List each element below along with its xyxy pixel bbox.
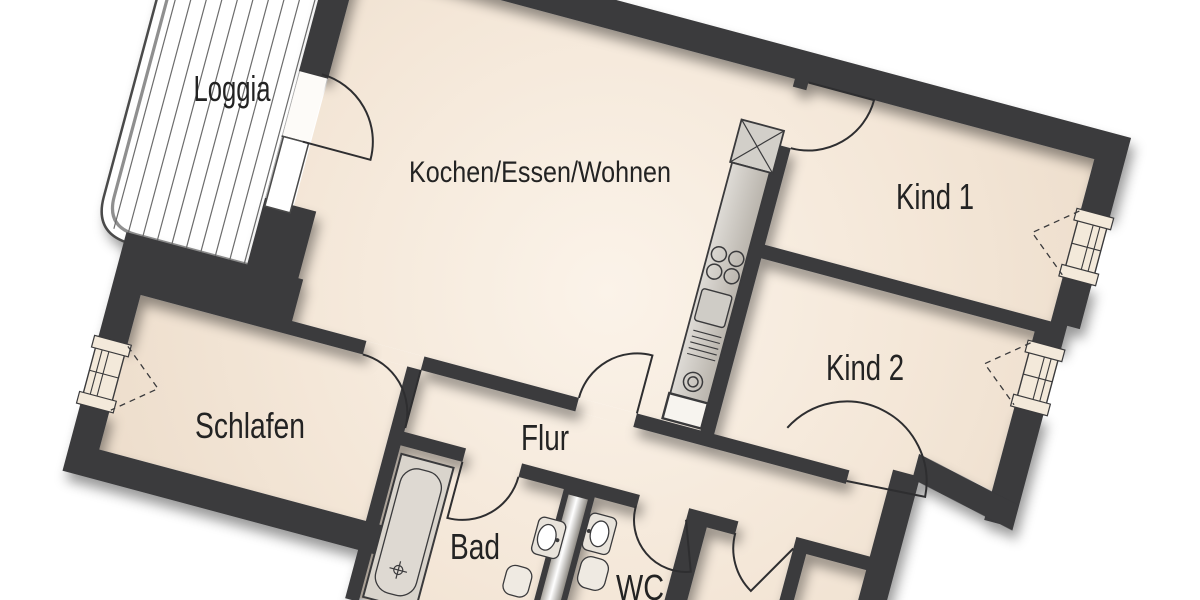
svg-text:Flur: Flur: [521, 417, 569, 458]
svg-text:Loggia: Loggia: [194, 68, 272, 109]
svg-text:Schlafen: Schlafen: [195, 405, 305, 446]
svg-text:Kind 1: Kind 1: [896, 176, 974, 217]
svg-text:Kind 2: Kind 2: [826, 347, 904, 388]
svg-text:WC: WC: [616, 567, 664, 600]
svg-text:Kochen/Essen/Wohnen: Kochen/Essen/Wohnen: [409, 156, 671, 189]
svg-text:Bad: Bad: [450, 526, 500, 567]
